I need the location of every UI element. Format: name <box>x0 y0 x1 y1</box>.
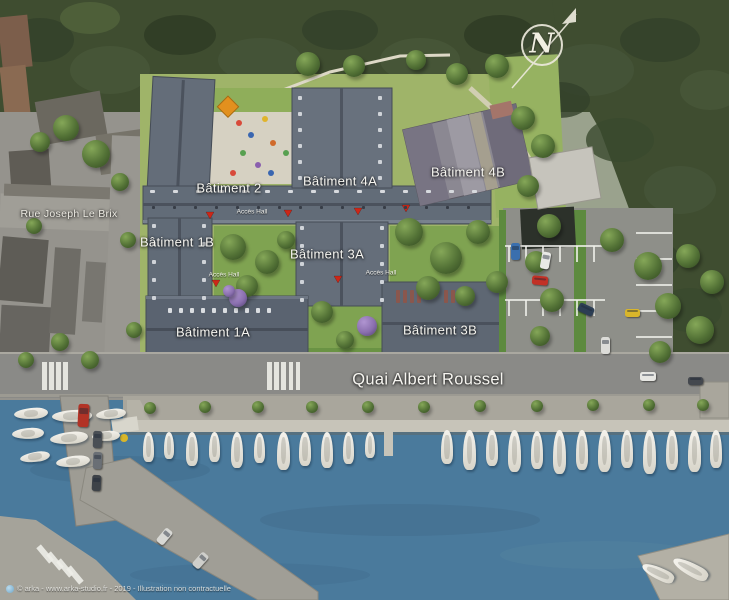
label-batiment-4b: Bâtiment 4B <box>431 165 505 180</box>
credit-line: © arka - www.arka-studio.fr - 2019 - Ill… <box>6 584 231 593</box>
skylight <box>378 96 382 100</box>
skylight <box>357 190 362 193</box>
moored-boat <box>321 432 333 468</box>
parking-line <box>525 300 527 316</box>
skylight <box>152 278 156 282</box>
parking-line <box>636 284 672 286</box>
skylight <box>300 280 304 284</box>
label-batiment-2: Bâtiment 2 <box>196 181 261 196</box>
tree <box>649 341 671 363</box>
dormer <box>245 308 249 313</box>
moored-boat <box>598 430 611 472</box>
finger-dock <box>384 420 393 456</box>
tree <box>455 286 475 306</box>
tree <box>306 401 318 413</box>
vehicle <box>77 404 89 428</box>
building-batiment-3a <box>296 222 388 306</box>
parking-line <box>559 246 561 262</box>
crosswalk-bar <box>42 362 47 390</box>
chimney <box>173 206 176 209</box>
tree <box>587 399 599 411</box>
tree <box>311 301 333 323</box>
tree <box>537 214 561 238</box>
label-batiment-1a: Bâtiment 1A <box>176 325 250 340</box>
tree <box>634 252 662 280</box>
tree <box>26 218 42 234</box>
moored-boat <box>666 430 678 470</box>
moored-boat <box>299 432 311 466</box>
label-quai-albert-roussel: Quai Albert Roussel <box>352 371 504 390</box>
tree <box>540 288 564 312</box>
skylight <box>449 190 454 193</box>
tree <box>252 401 264 413</box>
arka-logo-icon <box>6 585 14 593</box>
tree <box>474 400 486 412</box>
vehicle <box>92 475 102 491</box>
skylight <box>152 296 156 300</box>
tree <box>30 132 50 152</box>
playground-item <box>248 132 254 138</box>
label-batiment-4a: Bâtiment 4A <box>303 174 377 189</box>
skylight <box>380 226 384 230</box>
parking-line <box>508 246 510 262</box>
tree <box>53 115 79 141</box>
tree <box>81 351 99 369</box>
moored-boat <box>209 432 220 462</box>
label-batiment-3a: Bâtiment 3A <box>290 247 364 262</box>
moored-boat <box>463 430 476 470</box>
skylight <box>202 278 206 282</box>
chimney <box>383 206 386 209</box>
tree <box>700 270 724 294</box>
skylight <box>152 224 156 228</box>
skylight <box>378 112 382 116</box>
parking-hedge <box>574 210 586 362</box>
tree <box>485 54 509 78</box>
dormer <box>223 308 227 313</box>
moored-boat <box>441 430 453 464</box>
dormer <box>212 308 216 313</box>
moored-boat <box>343 432 354 464</box>
tree <box>600 228 624 252</box>
dormer <box>201 308 205 313</box>
moored-boat <box>277 432 290 470</box>
moored-boat <box>143 432 154 462</box>
purple-tree <box>357 316 377 336</box>
vehicle <box>511 243 520 260</box>
skylight <box>152 260 156 264</box>
moored-boat <box>186 432 198 466</box>
chimney <box>299 206 302 209</box>
roof-vent <box>444 290 448 303</box>
skylight <box>300 298 304 302</box>
dormer <box>267 308 271 313</box>
skylight <box>202 296 206 300</box>
label-batiment-3b: Bâtiment 3B <box>403 323 477 338</box>
roof-vent <box>403 290 407 303</box>
vehicle <box>532 275 549 285</box>
parking-line <box>508 300 510 316</box>
skylight <box>403 190 408 193</box>
moored-boat <box>621 430 633 468</box>
tree <box>697 399 709 411</box>
tree <box>686 316 714 344</box>
vehicle <box>93 431 103 448</box>
crosswalk-bar <box>267 362 272 390</box>
tree <box>296 52 320 76</box>
tree <box>343 55 365 77</box>
vehicle <box>688 377 703 385</box>
dormer <box>256 308 260 313</box>
skylight <box>298 96 302 100</box>
parking-line <box>636 336 672 338</box>
tree <box>655 293 681 319</box>
tree <box>531 400 543 412</box>
tree <box>418 401 430 413</box>
tree <box>199 401 211 413</box>
tree <box>126 322 142 338</box>
skylight <box>378 144 382 148</box>
chimney <box>152 206 155 209</box>
dormer <box>168 308 172 313</box>
moored-boat <box>710 430 722 468</box>
moored-boat <box>164 432 174 459</box>
label-acces-hall: Accès Hall <box>237 209 268 216</box>
parking-line <box>576 246 578 262</box>
tree <box>466 220 490 244</box>
tree <box>416 276 440 300</box>
skylight <box>298 128 302 132</box>
roof-vent <box>410 290 414 303</box>
playground-item <box>262 116 268 122</box>
moored-boat <box>254 433 265 463</box>
moored-boat <box>576 430 588 470</box>
moored-boat <box>508 430 521 472</box>
tree <box>120 232 136 248</box>
roof-vent <box>396 290 400 303</box>
tree <box>643 399 655 411</box>
vehicle <box>625 309 640 317</box>
moored-boat <box>553 430 566 474</box>
chimney <box>446 206 449 209</box>
playground-item <box>268 170 274 176</box>
crosswalk-bar <box>49 362 54 390</box>
skylight <box>265 190 270 193</box>
tree <box>18 352 34 368</box>
chimney <box>425 206 428 209</box>
playground-item <box>270 140 276 146</box>
tree <box>220 234 246 260</box>
moored-boat <box>486 430 498 466</box>
label-acces-hall: Accès Hall <box>366 270 397 277</box>
chimney <box>320 206 323 209</box>
label-acces-hall: Accès Hall <box>209 272 240 279</box>
credit-text: © arka - www.arka-studio.fr - 2019 - Ill… <box>17 584 231 593</box>
tree <box>144 402 156 414</box>
tree <box>336 331 354 349</box>
chimney <box>467 206 470 209</box>
chimney <box>404 206 407 209</box>
crosswalk-bar <box>56 362 61 390</box>
tree <box>395 218 423 246</box>
skylight <box>300 262 304 266</box>
skylight <box>380 280 384 284</box>
tree <box>530 326 550 346</box>
tree <box>486 271 508 293</box>
skylight <box>300 226 304 230</box>
crosswalk-bar <box>289 362 294 390</box>
chimney <box>362 206 365 209</box>
skylight <box>298 176 302 180</box>
skylight <box>378 176 382 180</box>
skylight <box>378 160 382 164</box>
moored-boat <box>688 430 701 472</box>
parking-line <box>636 232 672 234</box>
skylight <box>426 190 431 193</box>
aerial-site-plan: Bâtiment 2 Bâtiment 4A Bâtiment 4B Bâtim… <box>0 0 729 600</box>
moored-boat <box>643 430 656 474</box>
purple-tree <box>223 285 235 297</box>
dormer <box>179 308 183 313</box>
parking-line <box>505 245 605 247</box>
tree <box>430 242 462 274</box>
chimney <box>194 206 197 209</box>
skylight <box>380 298 384 302</box>
playground-item <box>283 150 289 156</box>
skylight <box>202 260 206 264</box>
skylight <box>202 224 206 228</box>
building-batiment-2 <box>147 76 215 193</box>
dormer <box>190 308 194 313</box>
chimney <box>341 206 344 209</box>
tree <box>51 333 69 351</box>
moored-boat <box>531 431 543 469</box>
dormer <box>234 308 238 313</box>
skylight <box>173 190 178 193</box>
vehicle <box>640 372 656 381</box>
label-batiment-1b: Bâtiment 1B <box>140 235 214 250</box>
tree <box>111 173 129 191</box>
playground-item <box>230 170 236 176</box>
terrain-illustration <box>0 0 729 600</box>
skylight <box>378 128 382 132</box>
tree <box>82 140 110 168</box>
tree <box>531 134 555 158</box>
tree <box>511 106 535 130</box>
chimney <box>215 206 218 209</box>
skylight <box>334 190 339 193</box>
tree <box>406 50 426 70</box>
crosswalk-bar <box>274 362 279 390</box>
tree <box>446 63 468 85</box>
crosswalk-bar <box>296 362 301 390</box>
skylight <box>311 190 316 193</box>
label-rue-joseph-le-brix: Rue Joseph Le Brix <box>20 208 117 220</box>
chimney <box>278 206 281 209</box>
compass-north-label: N <box>530 29 555 60</box>
skylight <box>380 262 384 266</box>
crosswalk-bar <box>281 362 286 390</box>
skylight <box>298 160 302 164</box>
skylight <box>380 190 385 193</box>
parking-line <box>593 246 595 262</box>
playground-court <box>210 112 292 184</box>
skylight <box>150 190 155 193</box>
skylight <box>380 244 384 248</box>
tree <box>362 401 374 413</box>
skylight <box>288 190 293 193</box>
vehicle <box>93 452 103 469</box>
skylight <box>298 144 302 148</box>
playground-item <box>255 162 261 168</box>
skylight <box>298 112 302 116</box>
moored-boat <box>231 432 243 468</box>
crosswalk-bar <box>63 362 68 390</box>
skylight <box>472 190 477 193</box>
tree <box>517 175 539 197</box>
vehicle <box>601 337 610 354</box>
moored-boat <box>365 432 375 458</box>
playground-item <box>240 150 246 156</box>
tree <box>676 244 700 268</box>
playground-item <box>236 120 242 126</box>
tree <box>255 250 279 274</box>
